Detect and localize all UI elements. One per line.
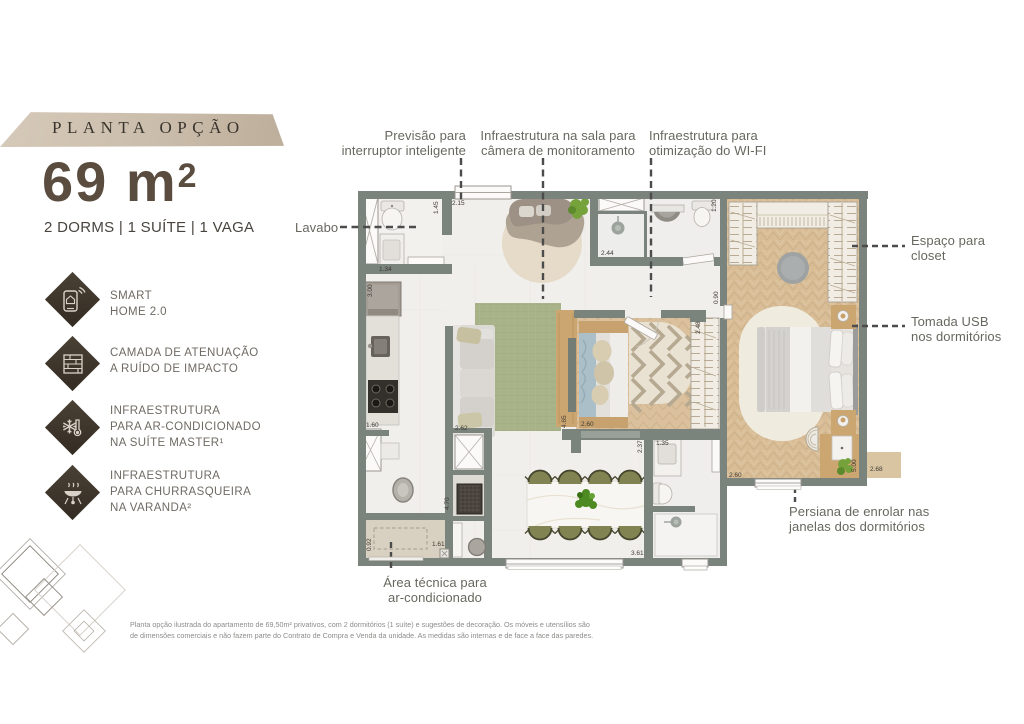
svg-text:2.60: 2.60 xyxy=(581,421,594,428)
svg-text:2.68: 2.68 xyxy=(870,466,883,473)
svg-text:0.90: 0.90 xyxy=(713,291,720,304)
svg-text:2.37: 2.37 xyxy=(637,440,644,453)
svg-text:5.00: 5.00 xyxy=(851,459,858,472)
svg-text:2.44: 2.44 xyxy=(601,250,614,257)
svg-text:2.60: 2.60 xyxy=(729,472,742,479)
svg-text:1.60: 1.60 xyxy=(366,422,379,429)
svg-text:2.48: 2.48 xyxy=(695,321,702,334)
svg-text:1.45: 1.45 xyxy=(433,201,440,214)
svg-text:2.15: 2.15 xyxy=(452,200,465,207)
svg-text:1.35: 1.35 xyxy=(656,440,669,447)
svg-text:3.61: 3.61 xyxy=(631,550,644,557)
svg-text:2.62: 2.62 xyxy=(455,425,468,432)
svg-text:1.34: 1.34 xyxy=(379,266,392,273)
svg-text:1.20: 1.20 xyxy=(711,199,718,212)
svg-text:4.70: 4.70 xyxy=(444,497,451,510)
svg-text:0.92: 0.92 xyxy=(366,538,373,551)
svg-text:1.61: 1.61 xyxy=(432,541,445,548)
svg-text:3.00: 3.00 xyxy=(367,284,374,297)
svg-text:4.65: 4.65 xyxy=(561,415,568,428)
